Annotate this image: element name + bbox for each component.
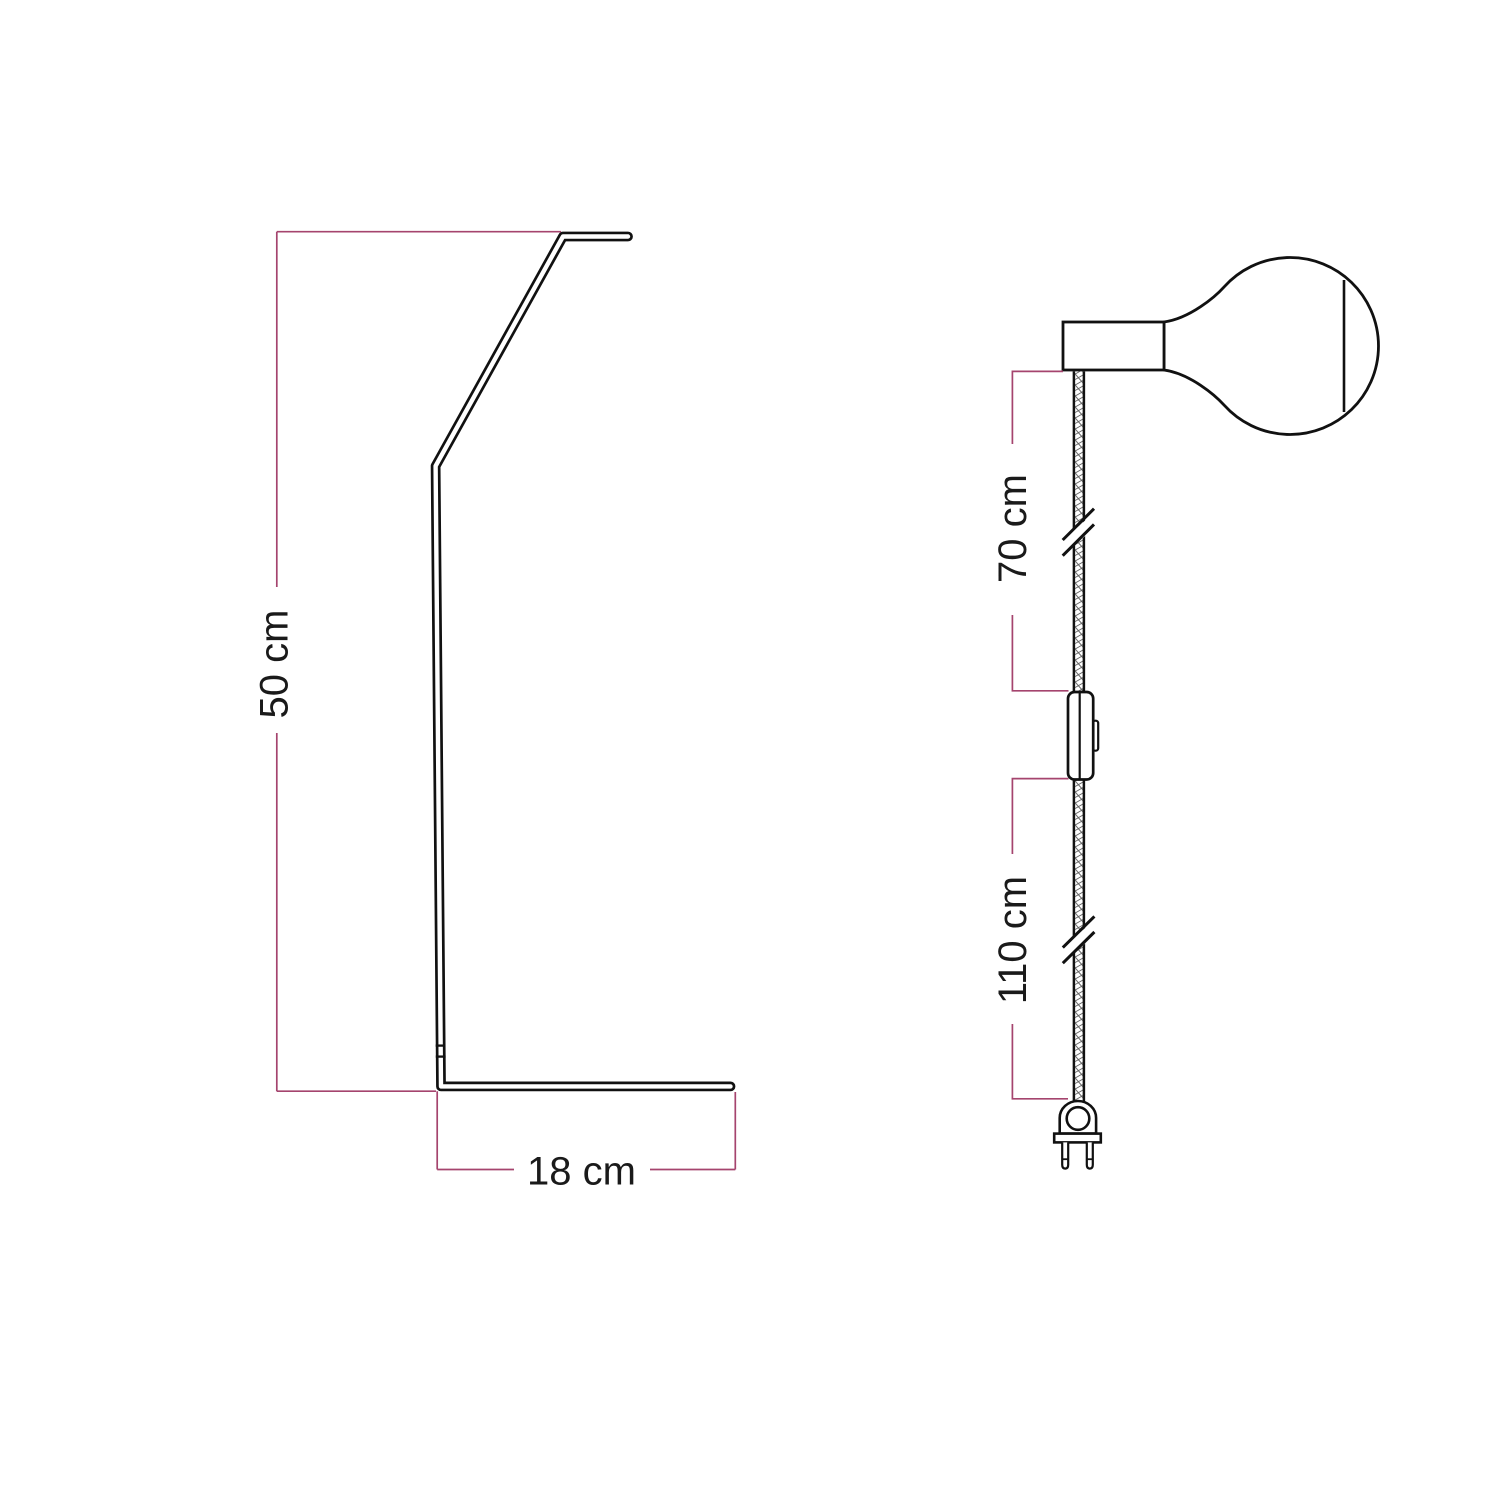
svg-text:18 cm: 18 cm — [527, 1150, 636, 1194]
svg-text:70 cm: 70 cm — [991, 474, 1035, 583]
svg-text:110 cm: 110 cm — [991, 876, 1035, 1004]
svg-text:50 cm: 50 cm — [253, 610, 297, 719]
